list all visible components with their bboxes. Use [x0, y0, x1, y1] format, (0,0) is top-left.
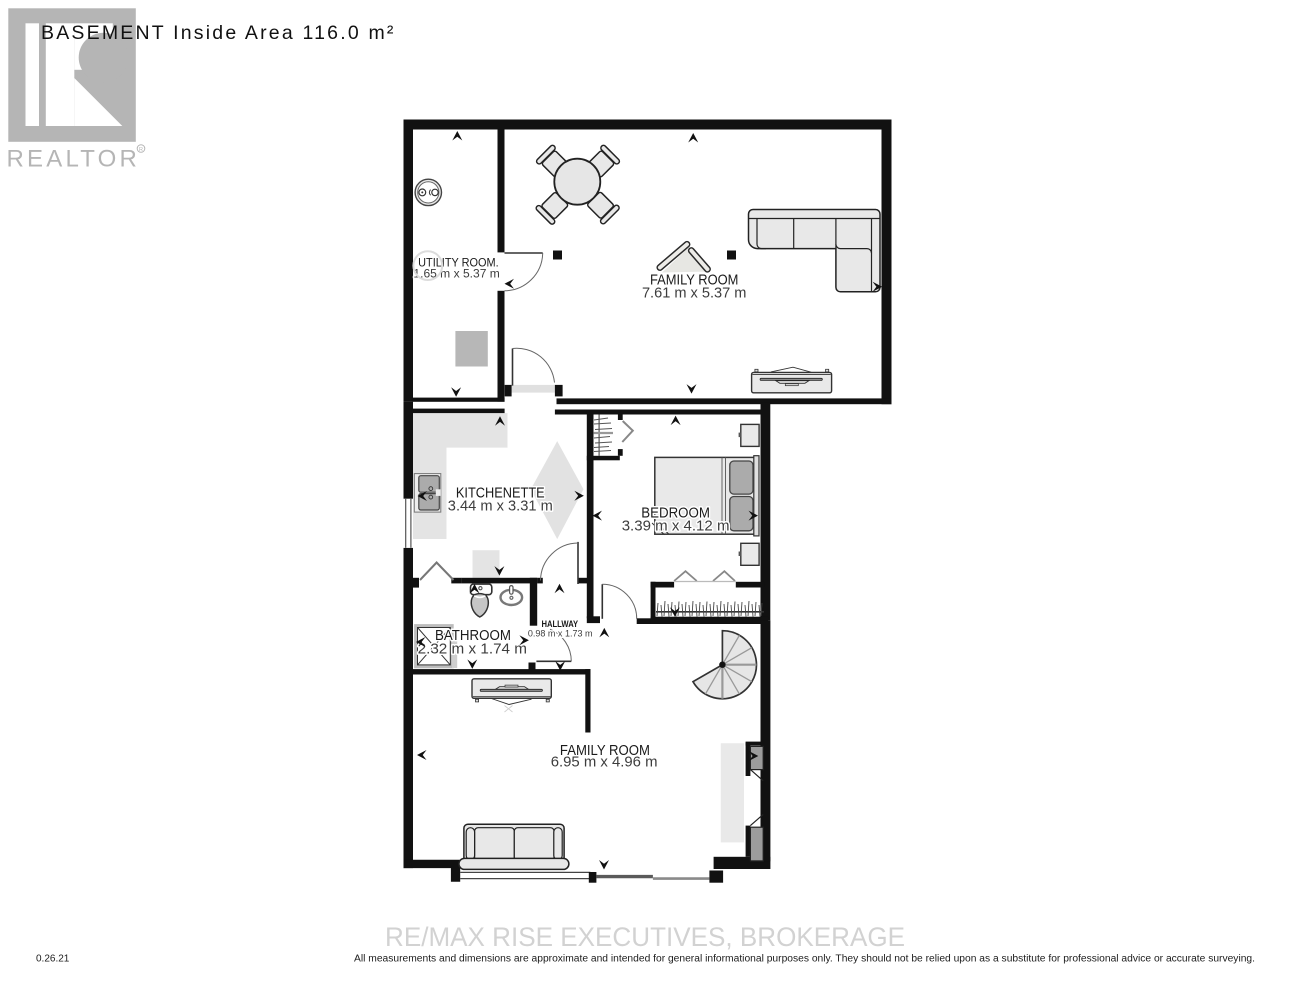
svg-text:R: R — [139, 147, 143, 153]
svg-text:1.65 m x 5.37 m: 1.65 m x 5.37 m — [413, 269, 499, 281]
svg-text:0.26.21: 0.26.21 — [36, 954, 70, 965]
svg-text:3.39 m x 4.12 m: 3.39 m x 4.12 m — [622, 518, 730, 535]
svg-text:All measurements and dimension: All measurements and dimensions are appr… — [354, 954, 1255, 965]
svg-text:7.61 m x 5.37 m: 7.61 m x 5.37 m — [642, 285, 747, 302]
svg-text:BASEMENT Inside Area 116.0 m²: BASEMENT Inside Area 116.0 m² — [41, 22, 396, 44]
svg-text:0.98 m x 1.73 m: 0.98 m x 1.73 m — [528, 628, 593, 638]
svg-text:RE/MAX RISE EXECUTIVES, BROKER: RE/MAX RISE EXECUTIVES, BROKERAGE — [385, 922, 905, 952]
svg-text:REALTOR: REALTOR — [7, 146, 141, 173]
svg-text:6.95 m x 4.96 m: 6.95 m x 4.96 m — [551, 754, 658, 771]
svg-text:2.32 m x 1.74 m: 2.32 m x 1.74 m — [418, 640, 527, 657]
svg-text:3.44 m x 3.31 m: 3.44 m x 3.31 m — [448, 498, 553, 515]
